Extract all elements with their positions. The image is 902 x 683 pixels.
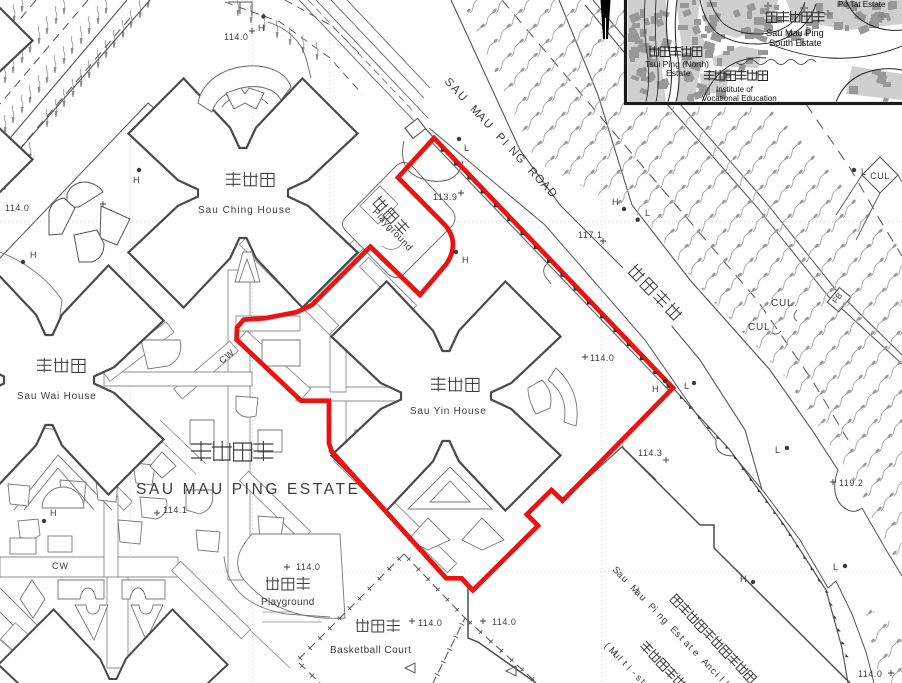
svg-text:117.1: 117.1	[578, 230, 602, 240]
svg-text:Institute of: Institute of	[716, 85, 754, 94]
svg-text:H: H	[258, 23, 265, 33]
svg-text:Estate: Estate	[666, 68, 691, 78]
svg-text:L: L	[775, 445, 780, 455]
svg-text:Sau Yin House: Sau Yin House	[410, 406, 487, 417]
svg-text:L: L	[684, 381, 689, 391]
svg-text:Basketball Court: Basketball Court	[330, 645, 411, 656]
svg-text:114.0: 114.0	[296, 562, 320, 572]
svg-text:114.0: 114.0	[858, 669, 882, 679]
svg-text:SAU MAU PING ESTATE: SAU MAU PING ESTATE	[136, 481, 361, 498]
svg-text:Sau Ching House: Sau Ching House	[198, 205, 291, 216]
svg-text:H: H	[652, 384, 659, 394]
svg-text:CUL: CUL	[748, 322, 770, 333]
svg-text:113.9: 113.9	[433, 192, 457, 202]
svg-text:114.0: 114.0	[5, 203, 29, 213]
svg-text:119.2: 119.2	[839, 478, 863, 488]
svg-text:Sau Mau Ping: Sau Mau Ping	[766, 28, 824, 38]
svg-text:L: L	[861, 167, 866, 177]
svg-text:L: L	[464, 143, 469, 153]
svg-text:CUL: CUL	[771, 298, 793, 309]
svg-text:Sau Wai House: Sau Wai House	[17, 391, 97, 402]
svg-text:114.0: 114.0	[590, 353, 614, 363]
svg-text:114.0: 114.0	[492, 617, 516, 627]
svg-text:Po Tat Estate: Po Tat Estate	[838, 0, 886, 9]
svg-text:H: H	[462, 255, 469, 265]
svg-text:L: L	[645, 208, 650, 218]
svg-text:114.3: 114.3	[638, 448, 662, 458]
svg-text:CUL: CUL	[870, 171, 890, 181]
svg-text:114.0: 114.0	[224, 32, 248, 42]
svg-text:H: H	[740, 574, 747, 584]
svg-text:H: H	[612, 197, 619, 207]
svg-text:CW: CW	[52, 561, 69, 571]
svg-text:114.0: 114.0	[418, 618, 442, 628]
svg-text:L: L	[833, 562, 838, 572]
svg-text:H: H	[30, 250, 37, 260]
svg-text:Playground: Playground	[261, 597, 315, 608]
svg-text:114.1: 114.1	[163, 505, 187, 515]
svg-text:H: H	[50, 508, 57, 518]
svg-text:H: H	[133, 175, 140, 185]
svg-text:South Estate: South Estate	[769, 38, 822, 48]
